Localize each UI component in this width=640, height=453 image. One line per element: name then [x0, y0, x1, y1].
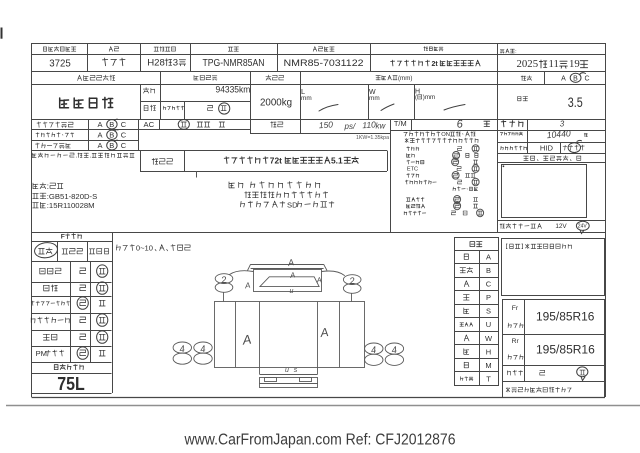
svg-text:H28: H28 [147, 58, 165, 69]
svg-text:A: A [561, 76, 566, 83]
svg-text:A: A [97, 141, 102, 150]
svg-text:A: A [243, 281, 251, 291]
svg-text:T: T [486, 374, 491, 383]
svg-text:S: S [486, 307, 491, 316]
svg-text:s: s [294, 367, 298, 374]
svg-text:TPG-NMR85AN: TPG-NMR85AN [203, 58, 265, 69]
svg-text::GB51-820D-S: :GB51-820D-S [47, 192, 97, 201]
svg-text:SD: SD [287, 200, 298, 209]
svg-text:10440: 10440 [546, 128, 571, 140]
svg-text:12V: 12V [555, 223, 567, 230]
svg-text:3725: 3725 [49, 57, 71, 69]
svg-text:2000kg: 2000kg [260, 98, 292, 109]
svg-text:A: A [97, 131, 102, 140]
svg-text:mm: mm [301, 95, 312, 102]
svg-text:1KW=1.35kpa: 1KW=1.35kpa [356, 135, 389, 141]
svg-text:HID: HID [540, 144, 554, 153]
svg-text:195/85R16: 195/85R16 [536, 343, 595, 357]
svg-text:ETC: ETC [407, 167, 418, 173]
svg-text:ps/: ps/ [344, 122, 356, 131]
svg-text:11: 11 [549, 58, 559, 70]
svg-text:www.CarFromJapan.com Ref: CFJ2: www.CarFromJapan.com Ref: CFJ2012876 [184, 431, 456, 448]
svg-text:B: B [573, 76, 578, 83]
svg-text:4: 4 [391, 345, 398, 357]
svg-text:4: 4 [199, 344, 206, 356]
svg-text:195/85R16: 195/85R16 [536, 309, 595, 323]
svg-text::15R110028M: :15R110028M [47, 201, 95, 210]
svg-text:4: 4 [179, 344, 186, 356]
svg-text:6: 6 [456, 118, 464, 131]
svg-text:B: B [109, 131, 114, 140]
svg-text:0~10: 0~10 [136, 244, 153, 253]
svg-text:A: A [289, 270, 296, 280]
svg-text:C: C [121, 131, 127, 140]
svg-text:72t: 72t [270, 155, 282, 165]
svg-text:B: B [109, 141, 114, 150]
svg-text:M: M [485, 361, 491, 370]
svg-text::: : [47, 182, 49, 191]
svg-text:H: H [486, 347, 491, 356]
svg-text:75L: 75L [57, 373, 85, 394]
svg-text:u: u [285, 367, 289, 374]
svg-text:u: u [290, 288, 294, 295]
svg-text:B: B [486, 266, 491, 275]
svg-text:(mm): (mm) [398, 75, 412, 82]
svg-text:mm: mm [369, 95, 380, 102]
svg-text:3: 3 [560, 119, 565, 128]
svg-text:24V: 24V [578, 224, 588, 230]
svg-text:A: A [241, 332, 253, 348]
svg-text:A: A [286, 257, 295, 268]
svg-text:NMR85-7031122: NMR85-7031122 [284, 58, 364, 69]
svg-text:.: . [76, 154, 78, 160]
svg-text:AC: AC [144, 120, 155, 129]
svg-text:A: A [315, 275, 322, 285]
svg-text:C: C [486, 280, 492, 289]
svg-text:U: U [486, 320, 491, 329]
svg-text:.: . [90, 154, 92, 160]
svg-text:3: 3 [173, 58, 178, 69]
svg-text::: : [515, 49, 517, 55]
svg-text:94335km: 94335km [216, 84, 251, 94]
svg-text:C: C [584, 76, 589, 83]
svg-text:ON: ON [441, 132, 450, 138]
svg-text:C: C [121, 120, 127, 129]
svg-text:110: 110 [362, 119, 376, 130]
svg-text:2: 2 [348, 276, 356, 288]
svg-text:F: F [61, 234, 65, 241]
svg-text:A: A [319, 325, 330, 340]
svg-text:5.1: 5.1 [331, 155, 343, 165]
svg-text:B: B [109, 120, 114, 129]
svg-text:Fr: Fr [512, 305, 519, 312]
svg-text:A: A [97, 120, 102, 129]
svg-text:)mm: )mm [423, 94, 435, 101]
svg-text:P: P [486, 293, 491, 302]
svg-text:150: 150 [318, 119, 333, 130]
svg-text:19: 19 [569, 58, 580, 70]
svg-text:kw: kw [376, 122, 387, 131]
svg-text:2025: 2025 [517, 58, 539, 70]
svg-text:3.5: 3.5 [568, 95, 583, 110]
svg-text:T/M: T/M [394, 119, 407, 128]
svg-text:C: C [121, 141, 127, 150]
svg-text:2: 2 [220, 275, 228, 287]
svg-text:Rr: Rr [512, 338, 520, 345]
svg-text:PM: PM [36, 349, 47, 358]
svg-text:W: W [485, 334, 493, 343]
svg-text:4: 4 [370, 345, 377, 357]
svg-text:2t: 2t [432, 61, 439, 68]
svg-text:A: A [486, 253, 491, 262]
